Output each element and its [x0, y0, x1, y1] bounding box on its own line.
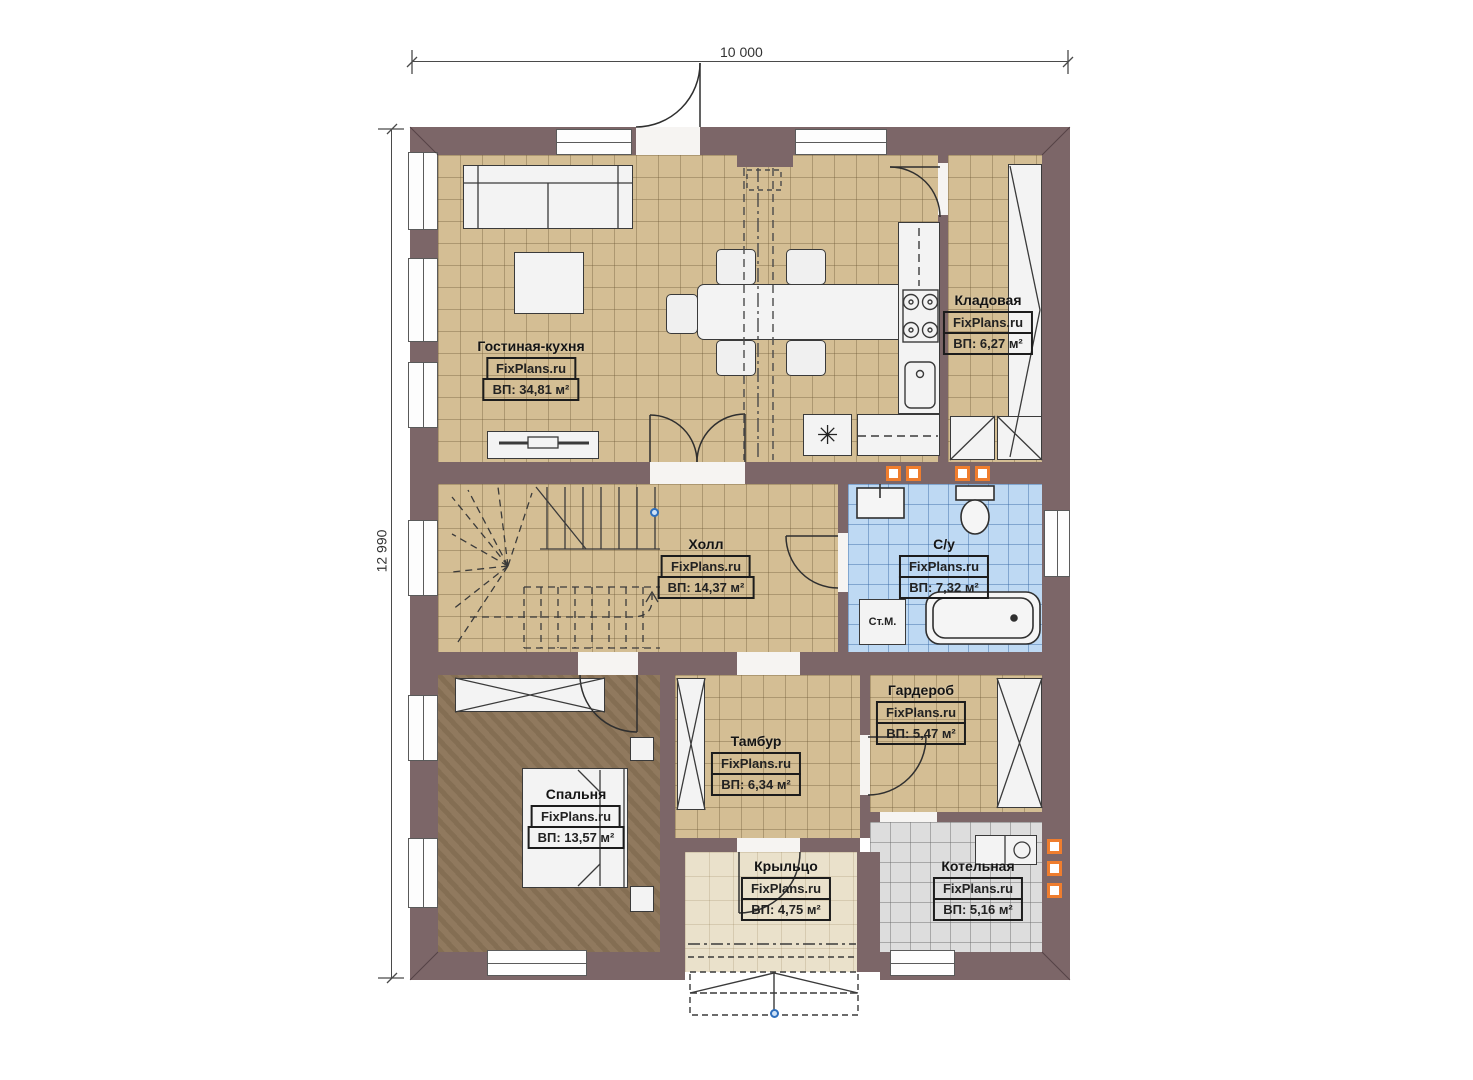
- watermark: FixPlans.ru: [661, 555, 751, 578]
- room-label-storage: Кладовая FixPlans.ru ВП: 6,27 м²: [943, 292, 1033, 355]
- chair: [716, 249, 756, 285]
- watermark: FixPlans.ru: [741, 877, 831, 900]
- vent-grille: [886, 466, 901, 481]
- door-opening-wardrobe: [860, 735, 870, 795]
- window: [408, 838, 438, 908]
- door-opening-boiler: [880, 812, 937, 822]
- window: [408, 695, 438, 761]
- door-opening-hall-vestibule: [737, 652, 800, 675]
- watermark: FixPlans.ru: [933, 877, 1023, 900]
- room-label-bedroom: Спальня FixPlans.ru ВП: 13,57 м²: [528, 786, 625, 849]
- dimension-width-label: 10 000: [712, 44, 771, 60]
- window: [795, 129, 887, 155]
- room-area: ВП: 6,27 м²: [943, 332, 1033, 355]
- window: [408, 152, 438, 230]
- window: [556, 129, 632, 155]
- fridge-icon: ✳: [817, 420, 839, 451]
- door-opening-bedroom: [578, 652, 638, 675]
- room-label-hall: Холл FixPlans.ru ВП: 14,37 м²: [658, 536, 755, 599]
- marker-dot: [770, 1009, 779, 1018]
- room-area: ВП: 5,47 м²: [876, 722, 966, 745]
- storage-shelf: [997, 416, 1042, 460]
- window: [408, 520, 438, 596]
- room-area: ВП: 14,37 м²: [658, 576, 755, 599]
- dimension-line-left: [391, 129, 392, 978]
- window: [408, 362, 438, 428]
- tv-stand: [487, 431, 599, 459]
- watermark: FixPlans.ru: [876, 701, 966, 724]
- kitchen-counter-bottom: [857, 414, 940, 456]
- vent-grille: [955, 466, 970, 481]
- door-opening-storage: [938, 163, 948, 215]
- sofa: [463, 165, 633, 229]
- window: [1044, 510, 1070, 577]
- fridge: ✳: [803, 414, 852, 456]
- window: [890, 950, 955, 976]
- vent-grille: [1047, 839, 1062, 854]
- watermark: FixPlans.ru: [899, 555, 989, 578]
- vent-grille: [975, 466, 990, 481]
- dimension-height-label: 12 990: [373, 522, 389, 581]
- room-label-vestibule: Тамбур FixPlans.ru ВП: 6,34 м²: [711, 733, 801, 796]
- vent-grille: [906, 466, 921, 481]
- door-arc: [636, 63, 700, 127]
- chair: [716, 340, 756, 376]
- door-opening-bathroom: [838, 533, 848, 592]
- chair: [786, 340, 826, 376]
- chair: [786, 249, 826, 285]
- wall-porch-right: [857, 852, 880, 972]
- wardrobe-rack: [997, 678, 1042, 808]
- room-label-wardrobe: Гардероб FixPlans.ru ВП: 5,47 м²: [876, 682, 966, 745]
- washing-machine: Ст.М.: [859, 599, 906, 645]
- dining-table: [697, 284, 907, 340]
- door-opening-living-hall: [650, 462, 745, 484]
- nightstand: [630, 737, 654, 761]
- vent-grille: [1047, 861, 1062, 876]
- watermark: FixPlans.ru: [943, 311, 1033, 334]
- watermark: FixPlans.ru: [711, 752, 801, 775]
- room-label-living: Гостиная-кухня FixPlans.ru ВП: 34,81 м²: [477, 338, 584, 401]
- chair: [666, 294, 698, 334]
- marker-dot: [650, 508, 659, 517]
- room-label-bathroom: С/у FixPlans.ru ВП: 7,32 м²: [899, 536, 989, 599]
- room-area: ВП: 6,34 м²: [711, 773, 801, 796]
- wardrobe-cabinet: [455, 678, 605, 712]
- door-opening-terrace: [636, 127, 700, 155]
- room-area: ВП: 4,75 м²: [741, 898, 831, 921]
- door-opening-front: [737, 838, 800, 852]
- storage-shelf: [950, 416, 995, 460]
- room-hall-floor: [438, 484, 838, 652]
- room-label-porch: Крыльцо FixPlans.ru ВП: 4,75 м²: [741, 858, 831, 921]
- room-label-boiler: Котельная FixPlans.ru ВП: 5,16 м²: [933, 858, 1023, 921]
- room-area: ВП: 13,57 м²: [528, 826, 625, 849]
- watermark: FixPlans.ru: [486, 357, 576, 380]
- room-area: ВП: 34,81 м²: [483, 378, 580, 401]
- closet-rack: [677, 678, 705, 810]
- vent-grille: [1047, 883, 1062, 898]
- kitchen-counter-right: [898, 222, 940, 414]
- floor-plan-canvas: ✳ Ст.М.: [0, 0, 1473, 1080]
- nightstand: [630, 886, 654, 912]
- wall-porch-left: [665, 852, 685, 972]
- watermark: FixPlans.ru: [531, 805, 621, 828]
- dimension-line-top: [412, 61, 1068, 62]
- room-area: ВП: 7,32 м²: [899, 576, 989, 599]
- chimney-block: [737, 127, 793, 167]
- window: [487, 950, 587, 976]
- coffee-table: [514, 252, 584, 314]
- window: [408, 258, 438, 342]
- room-area: ВП: 5,16 м²: [933, 898, 1023, 921]
